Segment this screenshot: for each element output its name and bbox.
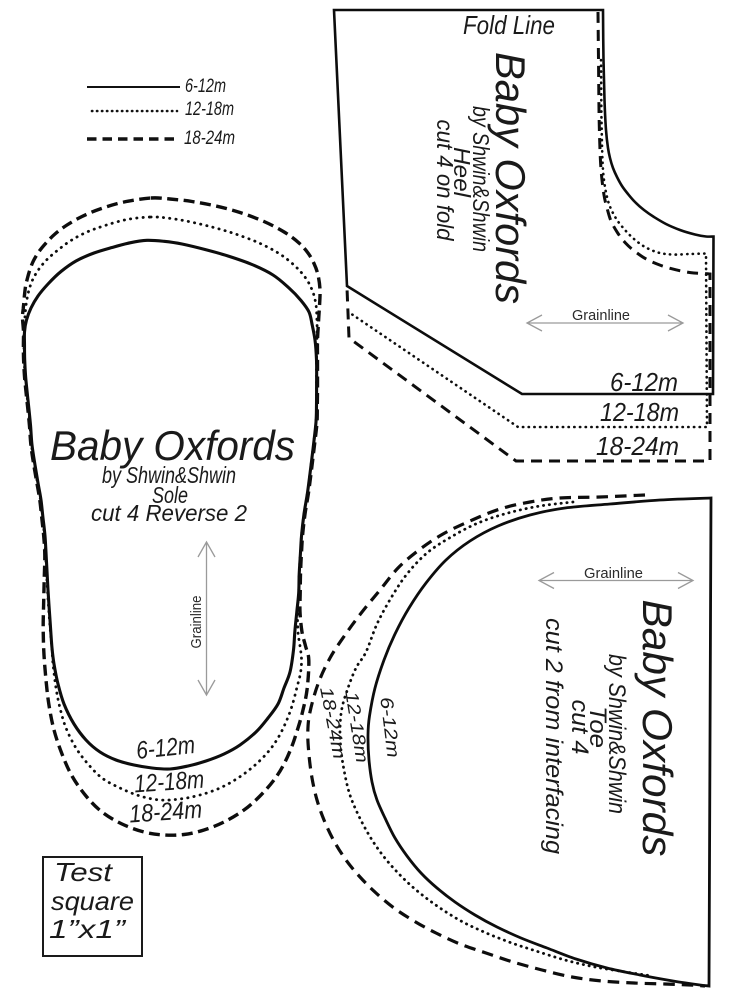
svg-text:square: square [51, 886, 134, 916]
svg-text:12-18m: 12-18m [600, 397, 679, 427]
svg-text:6-12m: 6-12m [610, 367, 678, 397]
svg-text:Grainline: Grainline [189, 596, 205, 649]
svg-text:cut 2 from interfacing: cut 2 from interfacing [540, 618, 567, 855]
svg-text:12-18m: 12-18m [185, 99, 234, 120]
svg-text:6-12m: 6-12m [135, 731, 197, 765]
svg-text:Baby Oxfords: Baby Oxfords [634, 600, 681, 857]
svg-text:1”x1”: 1”x1” [49, 914, 127, 944]
svg-text:cut 4 on fold: cut 4 on fold [432, 120, 458, 242]
svg-text:18-24m: 18-24m [596, 431, 679, 461]
svg-text:18-24m: 18-24m [128, 796, 203, 829]
svg-text:18-24m: 18-24m [184, 128, 235, 149]
svg-text:cut 4: cut 4 [566, 700, 593, 755]
svg-text:cut 4 Reverse 2: cut 4 Reverse 2 [91, 500, 247, 526]
svg-text:6-12m: 6-12m [185, 76, 226, 97]
svg-text:Test: Test [54, 857, 114, 887]
svg-text:Grainline: Grainline [584, 565, 643, 582]
svg-text:6-12m: 6-12m [376, 696, 403, 759]
svg-text:Fold Line: Fold Line [463, 10, 555, 40]
svg-text:12-18m: 12-18m [133, 766, 205, 799]
svg-text:Grainline: Grainline [572, 308, 630, 324]
